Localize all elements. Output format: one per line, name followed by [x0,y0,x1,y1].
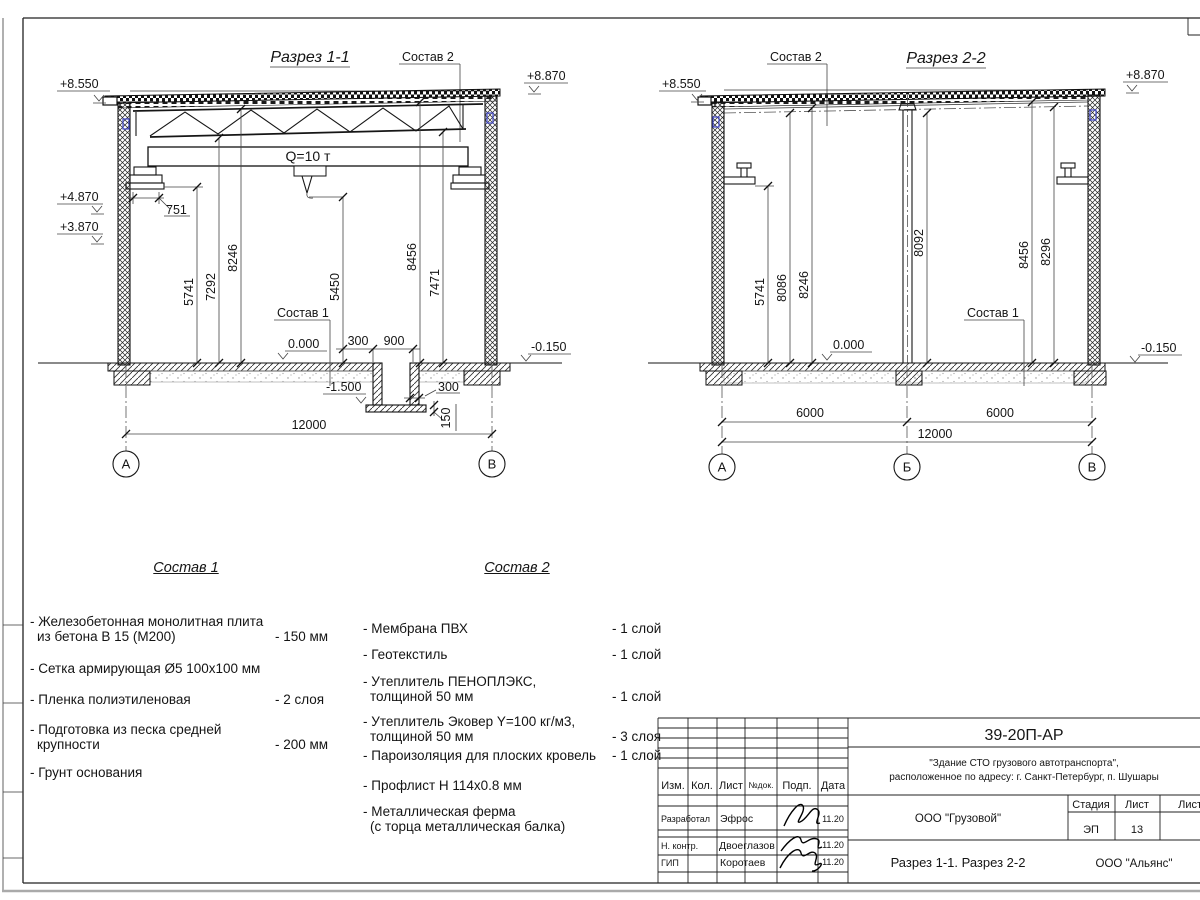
eave-cap-2 [698,97,711,105]
elevation-marks-2: +8.550 +8.870 0.000 -0.150 [659,68,1182,362]
item-text2: толщиной 50 мм [370,689,612,704]
section-2-title: Разрез 2-2 [906,50,985,67]
corbel-right [451,167,489,189]
list-item: - Геотекстиль - 1 слой [363,647,675,662]
item-text: - Железобетонная монолитная плита [30,614,275,629]
tb-document-code: 39-20П-АР [984,727,1063,744]
item-text: - Геотекстиль [363,647,612,662]
item-text2: крупности [37,737,275,752]
dim-300b: 300 [438,380,459,394]
axis-label-v2: В [1088,460,1097,475]
list-item: - Пароизоляция для плоских кровель - 1 с… [363,748,675,763]
item-value: - 1 слой [612,621,675,636]
svg-text:751: 751 [166,203,187,217]
wall-left-2 [712,102,724,365]
lvl2-8870: +8.870 [1126,68,1165,82]
list-item: - Грунт основания [30,765,342,780]
axis-label-b2: Б [903,460,912,475]
lvl-8870: +8.870 [527,69,566,83]
floor-slab-2 [648,363,1168,385]
item-value: - 3 слоя [612,729,675,744]
list-item: - Железобетонная монолитная плитаиз бето… [30,614,342,644]
list-item: - Утеплитель ПЕНОПЛЭКС,толщиной 50 мм - … [363,674,675,704]
list-item: - Пленка полиэтиленовая - 2 слоя [30,692,342,707]
item-text2: (с торца металлическая балка) [370,819,612,834]
lvl-m0150: -0.150 [531,340,566,354]
tb-header-list: Лист [719,780,743,792]
dim2-8456: 8456 [1017,241,1031,269]
dim-5450: 5450 [328,273,342,301]
middle-column [899,95,916,363]
tb-header-stage: Стадия [1072,799,1110,811]
tb-name-ncontr: Двоеглазов [719,840,775,852]
list-item: - Подготовка из песка среднейкрупности -… [30,722,342,752]
tb-role-ncontr: Н. контр. [661,841,698,851]
floor-slab [38,363,562,385]
lvl-3870: +3.870 [60,220,99,234]
tb-header-ndoc: №док. [749,780,774,790]
item-text: - Пленка полиэтиленовая [30,692,275,707]
eave-cap [103,97,117,105]
dim-751: 751 [128,192,190,217]
tb-company: ООО "Альянс" [1096,858,1173,870]
wall-left [118,103,130,365]
axis-label-a2: А [718,460,727,475]
dim-8456: 8456 [405,243,419,271]
item-text2: толщиной 50 мм [370,729,612,744]
lvl2-0000: 0.000 [833,338,864,352]
list-item: - Металлическая ферма(с торца металличес… [363,804,675,834]
sostav2-list: Состав 2 - Мембрана ПВХ - 1 слой - Геоте… [363,561,675,834]
signature-developer [784,804,820,826]
tb-header-kol: Кол. [691,780,713,792]
vertical-dimensions-2: 5741 8086 8246 8092 8456 8296 [753,98,1058,367]
item-text: - Металлическая ферма [363,804,612,819]
footing-left [114,371,150,385]
dim-5741: 5741 [182,278,196,306]
dim2-12000: 12000 [918,427,953,441]
roof-truss [133,104,483,137]
footing-left-2 [706,371,742,385]
dim2-8246: 8246 [797,271,811,299]
sostav1-title: Состав 1 [106,561,266,576]
item-value: - 150 мм [275,629,342,644]
sostav1-callout-2: Состав 1 [967,306,1019,320]
tb-header-data: Дата [821,780,846,792]
drawing-sheet: Разрез 1-1 Состав 2 Q=10 т [0,0,1200,900]
item-text2: из бетона В 15 (М200) [37,629,275,644]
tb-name-developer: Эфрос [720,813,753,825]
dim-7471: 7471 [428,269,442,297]
dim-6000a: 6000 [796,406,824,420]
tb-object-title: Разрез 1-1. Разрез 2-2 [891,855,1026,870]
tb-header-podp: Подп. [782,780,811,792]
lvl-4870: +4.870 [60,190,99,204]
tb-header-sheet: Лист [1125,799,1149,811]
dim2-8086: 8086 [775,274,789,302]
lvl-0000: 0.000 [288,337,319,351]
item-value: - 2 слоя [275,692,342,707]
dim2-8296: 8296 [1039,238,1053,266]
dim-7292: 7292 [204,273,218,301]
item-text: - Утеплитель Эковер Y=100 кг/м3, [363,714,612,729]
lvl2-8550: +8.550 [662,77,701,91]
dim-8246: 8246 [226,244,240,272]
dim-900: 900 [384,334,405,348]
bracket-right-2 [1057,163,1088,184]
sostav2-callout-2: Состав 2 [770,50,822,64]
list-item: - Утеплитель Эковер Y=100 кг/м3,толщиной… [363,714,675,744]
dim-12000: 12000 [292,418,327,432]
tb-stage-value: ЭП [1083,824,1099,836]
sostav2-title: Состав 2 [437,561,597,576]
lvl2-m0150: -0.150 [1141,341,1176,355]
dim2-8092: 8092 [912,229,926,257]
footing-right-2 [1074,371,1106,385]
signature-ncontr [781,837,822,851]
section-1-1: Разрез 1-1 Состав 2 Q=10 т [38,49,571,477]
item-text: - Профлист Н 114х0.8 мм [363,778,612,793]
item-text: - Грунт основания [30,765,275,780]
section-2-2: Разрез 2-2 Состав 2 [648,50,1182,480]
axis-label-b1: В [488,457,497,472]
item-value: - 1 слой [612,689,675,704]
dim-300a: 300 [348,334,369,348]
item-text: - Мембрана ПВХ [363,621,612,636]
dim2-5741: 5741 [753,278,767,306]
lvl-m1500: -1.500 [326,380,361,394]
list-item: - Мембрана ПВХ - 1 слой [363,621,675,636]
wall-right-2 [1088,95,1100,365]
tb-header-sheets: Листов [1178,799,1200,811]
sostav2-callout: Состав 2 [402,50,454,64]
tb-org: ООО "Грузовой" [915,813,1001,825]
tb-date-gip: 11.20 [822,857,844,867]
signature-gip [780,850,821,871]
item-value: - 1 слой [612,647,675,662]
footing-mid-2 [896,371,922,385]
dim-150: 150 [439,408,453,429]
tb-role-gip: ГИП [661,858,679,868]
sostav1-list: Состав 1 - Железобетонная монолитная пли… [30,561,342,780]
wall-right [485,96,497,365]
item-value: - 1 слой [612,748,675,763]
inspection-pit [366,363,426,412]
lvl-8550: +8.550 [60,77,99,91]
list-item: - Сетка армирующая Ø5 100х100 мм [30,661,342,676]
item-text: - Подготовка из песка средней [30,722,275,737]
tb-sheet-value: 13 [1131,824,1143,836]
corner-stamp-box [1188,18,1200,35]
footing-right [464,371,500,385]
crane-capacity-label: Q=10 т [286,148,332,164]
item-value: - 200 мм [275,737,342,752]
tb-date-ncontr: 11.20 [822,840,844,850]
item-text: - Сетка армирующая Ø5 100х100 мм [30,661,275,676]
section-1-title: Разрез 1-1 [270,49,349,66]
tb-name-gip: Коротаев [720,857,766,869]
tb-project-line2: расположенное по адресу: г. Санкт-Петерб… [889,771,1159,783]
bracket-left-2 [724,163,755,184]
tb-project-line1: "Здание СТО грузового автотранспорта", [929,758,1119,769]
vertical-dimensions: 5741 7292 8246 5450 8456 7471 [164,98,447,367]
list-item: - Профлист Н 114х0.8 мм [363,778,675,793]
title-block: Изм. Кол. Лист №док. Подп. Дата Разработ… [658,718,1200,883]
tb-date-developer: 11.20 [822,814,844,824]
item-text: - Утеплитель ПЕНОПЛЭКС, [363,674,612,689]
dim-6000b: 6000 [986,406,1014,420]
axis-label-a1: А [122,457,131,472]
item-text: - Пароизоляция для плоских кровель [363,748,612,763]
sostav1-callout: Состав 1 [277,306,329,320]
corbel-left [126,167,164,189]
